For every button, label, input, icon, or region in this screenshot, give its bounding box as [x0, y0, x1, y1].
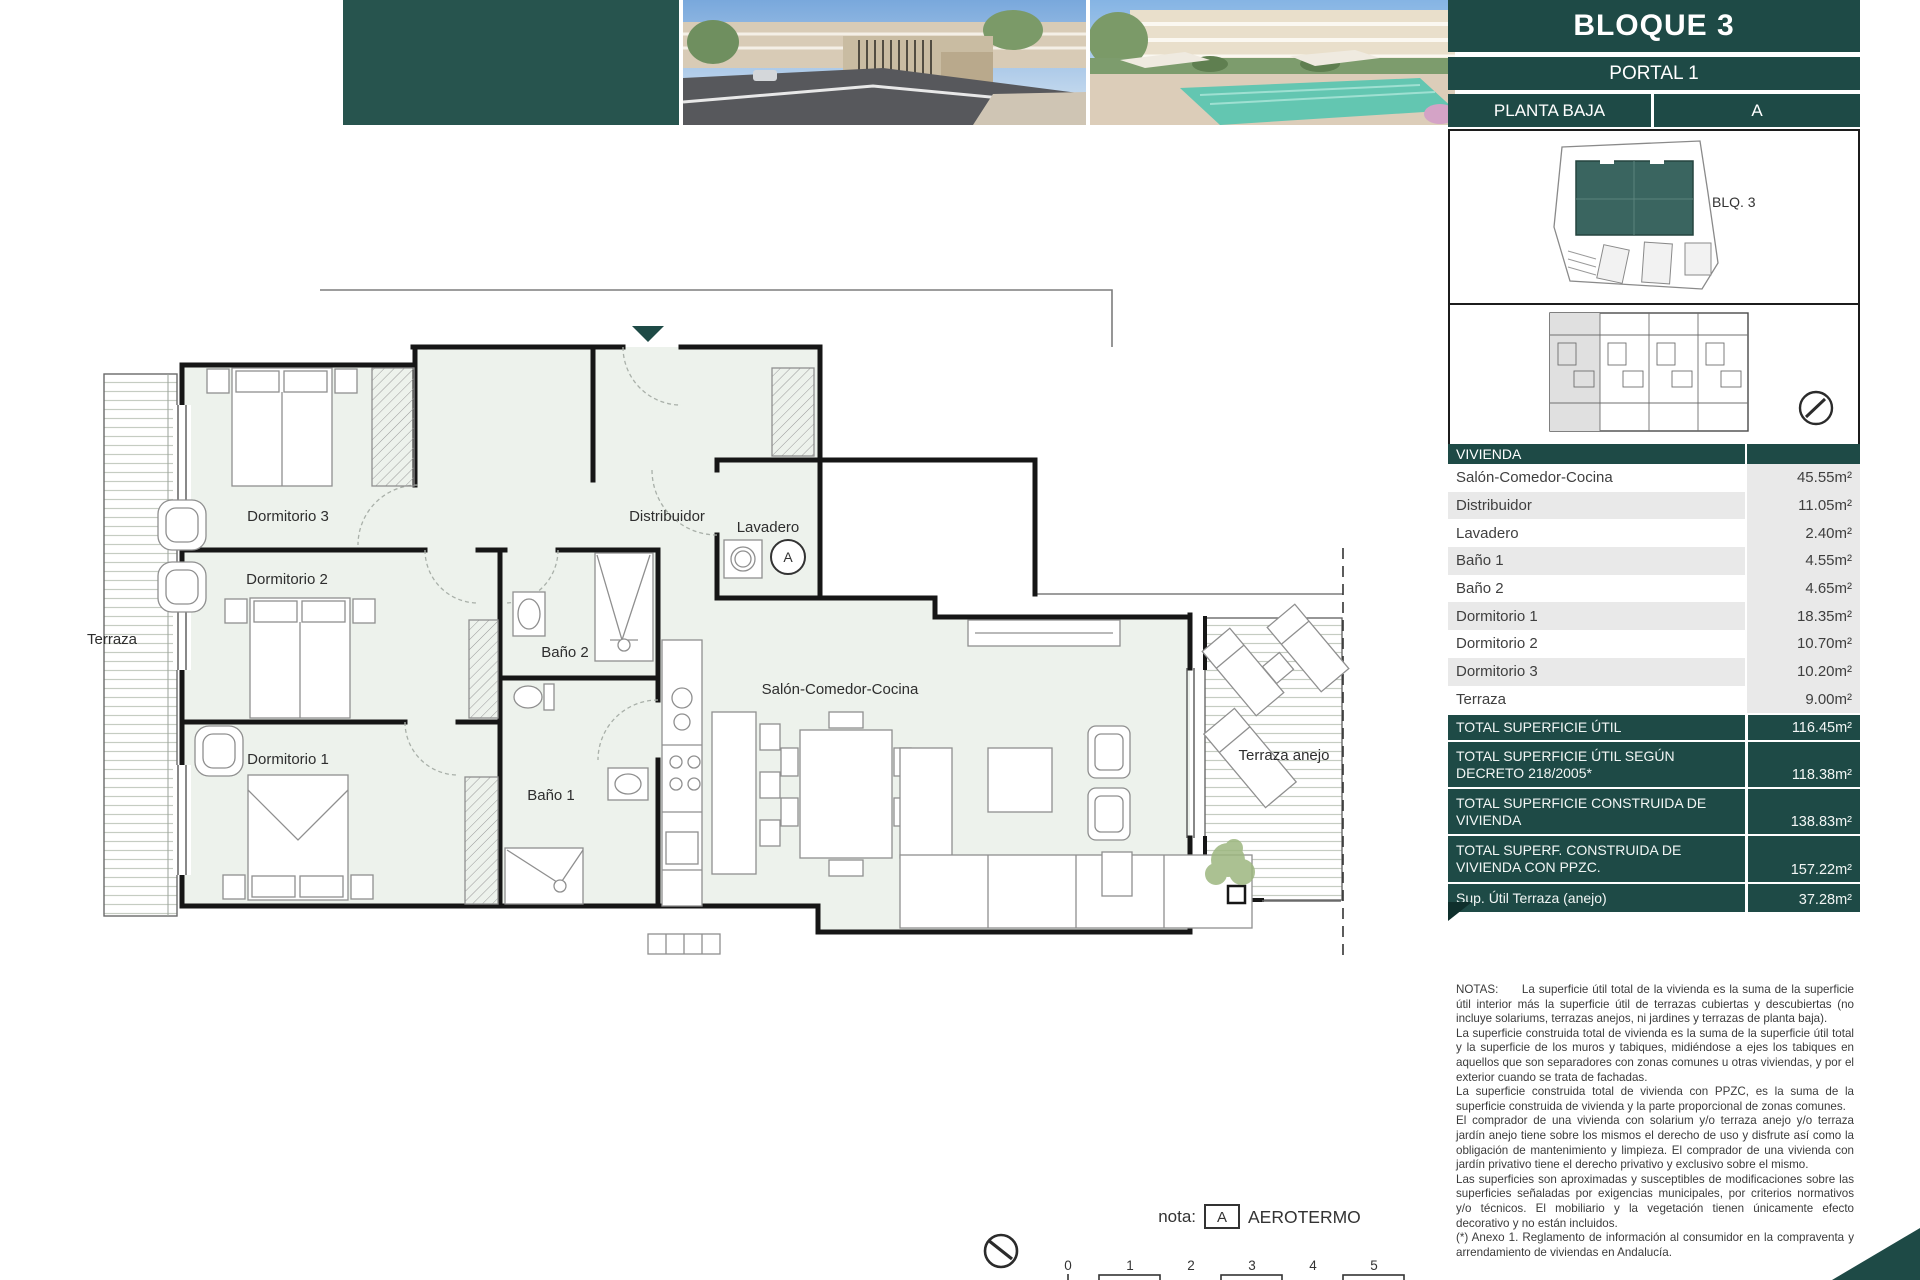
- svg-text:3: 3: [1248, 1258, 1256, 1273]
- note-paragraph: El comprador de una vivienda con solariu…: [1456, 1114, 1854, 1172]
- scale-bar: 0 1 2 3 4 5: [1064, 1258, 1404, 1280]
- aerotermo-note: nota: A AEROTERMO: [1158, 1205, 1361, 1228]
- portal-band: PORTAL 1: [1448, 57, 1860, 90]
- floor-unit-band: PLANTA BAJA A: [1448, 94, 1860, 127]
- note-paragraph: (*) Anexo 1. Reglamento de información a…: [1456, 1231, 1854, 1260]
- label-terraza: Terraza: [87, 631, 138, 648]
- info-panel: BLOQUE 3 PORTAL 1 PLANTA BAJA A: [1448, 0, 1860, 1280]
- nota-key-label: AEROTERMO: [1248, 1207, 1361, 1227]
- table-row: Salón-Comedor-Cocina45.55m²: [1448, 464, 1860, 492]
- aerotermo-mark: A: [771, 540, 805, 574]
- key-plan-cell: [1448, 303, 1860, 446]
- nota-key: A: [1217, 1209, 1227, 1226]
- pool-garden-render: [1090, 0, 1455, 125]
- street-entrance-render: [683, 0, 1086, 125]
- note-paragraph: NOTAS: La superficie útil total de la vi…: [1456, 983, 1854, 1027]
- label-dormitorio1: Dormitorio 1: [247, 751, 329, 768]
- table-row: Dormitorio 310.20m²: [1448, 658, 1860, 686]
- note-paragraph: Las superficies son aproximadas y suscep…: [1456, 1173, 1854, 1231]
- label-dormitorio2: Dormitorio 2: [246, 571, 328, 588]
- svg-text:5: 5: [1370, 1258, 1378, 1273]
- site-block-label: BLQ. 3: [1712, 194, 1756, 210]
- table-row: Baño 14.55m²: [1448, 547, 1860, 575]
- header-teal-block: [343, 0, 679, 125]
- panel-compass-icon: [1800, 392, 1832, 424]
- portal-text: PORTAL 1: [1609, 63, 1698, 85]
- label-terraza-anejo: Terraza anejo: [1239, 747, 1330, 764]
- areas-table: VIVIENDA Salón-Comedor-Cocina45.55m² Dis…: [1448, 444, 1860, 912]
- note-paragraph: La superficie construida total de vivien…: [1456, 1085, 1854, 1114]
- total-row: TOTAL SUPERFICIE ÚTIL SEGÚN DECRETO 218/…: [1448, 740, 1860, 787]
- total-row: TOTAL SUPERFICIE ÚTIL116.45m²: [1448, 713, 1860, 740]
- table-fold-corner: [1448, 902, 1472, 921]
- notes-block: NOTAS: La superficie útil total de la vi…: [1456, 983, 1854, 1260]
- label-bano1: Baño 1: [527, 787, 575, 804]
- table-header-label: VIVIENDA: [1456, 446, 1521, 462]
- svg-text:1: 1: [1126, 1258, 1134, 1273]
- label-bano2: Baño 2: [541, 644, 589, 661]
- label-distribuidor: Distribuidor: [629, 508, 705, 525]
- table-header: VIVIENDA: [1448, 444, 1860, 464]
- svg-text:0: 0: [1064, 1258, 1072, 1273]
- label-lavadero: Lavadero: [737, 519, 800, 536]
- total-row: TOTAL SUPERFICIE CONSTRUIDA DE VIVIENDA1…: [1448, 787, 1860, 834]
- corner-triangle: [1832, 1228, 1920, 1280]
- label-dormitorio3: Dormitorio 3: [247, 508, 329, 525]
- site-plan: BLQ. 3: [1450, 131, 1858, 303]
- table-row: Dormitorio 210.70m²: [1448, 630, 1860, 658]
- table-row: Lavadero2.40m²: [1448, 519, 1860, 547]
- unit-letter: A: [1654, 101, 1860, 121]
- note-paragraph: La superficie construida total de vivien…: [1456, 1027, 1854, 1085]
- key-plan: [1450, 305, 1858, 444]
- north-compass-icon: [985, 1235, 1017, 1267]
- table-row: Distribuidor11.05m²: [1448, 492, 1860, 520]
- nota-label: nota:: [1158, 1207, 1196, 1226]
- total-row: Sup. Útil Terraza (anejo)37.28m²: [1448, 882, 1860, 912]
- svg-text:A: A: [783, 549, 793, 565]
- svg-text:2: 2: [1187, 1258, 1195, 1273]
- floor-name: PLANTA BAJA: [1448, 101, 1651, 121]
- table-row: Terraza9.00m²: [1448, 686, 1860, 714]
- table-row: Baño 24.65m²: [1448, 575, 1860, 603]
- total-row: TOTAL SUPERF. CONSTRUIDA DE VIVIENDA CON…: [1448, 834, 1860, 882]
- site-plan-cell: BLQ. 3: [1448, 129, 1860, 305]
- block-title-text: BLOQUE 3: [1573, 9, 1734, 43]
- block-title: BLOQUE 3: [1448, 0, 1860, 52]
- svg-text:4: 4: [1309, 1258, 1317, 1273]
- label-salon: Salón-Comedor-Cocina: [762, 681, 919, 698]
- plan-sheet: A Terraza Dormitorio 3 Dormitorio 2 Dorm…: [0, 0, 1920, 1280]
- entry-arrow-icon: [632, 326, 664, 342]
- table-row: Dormitorio 118.35m²: [1448, 602, 1860, 630]
